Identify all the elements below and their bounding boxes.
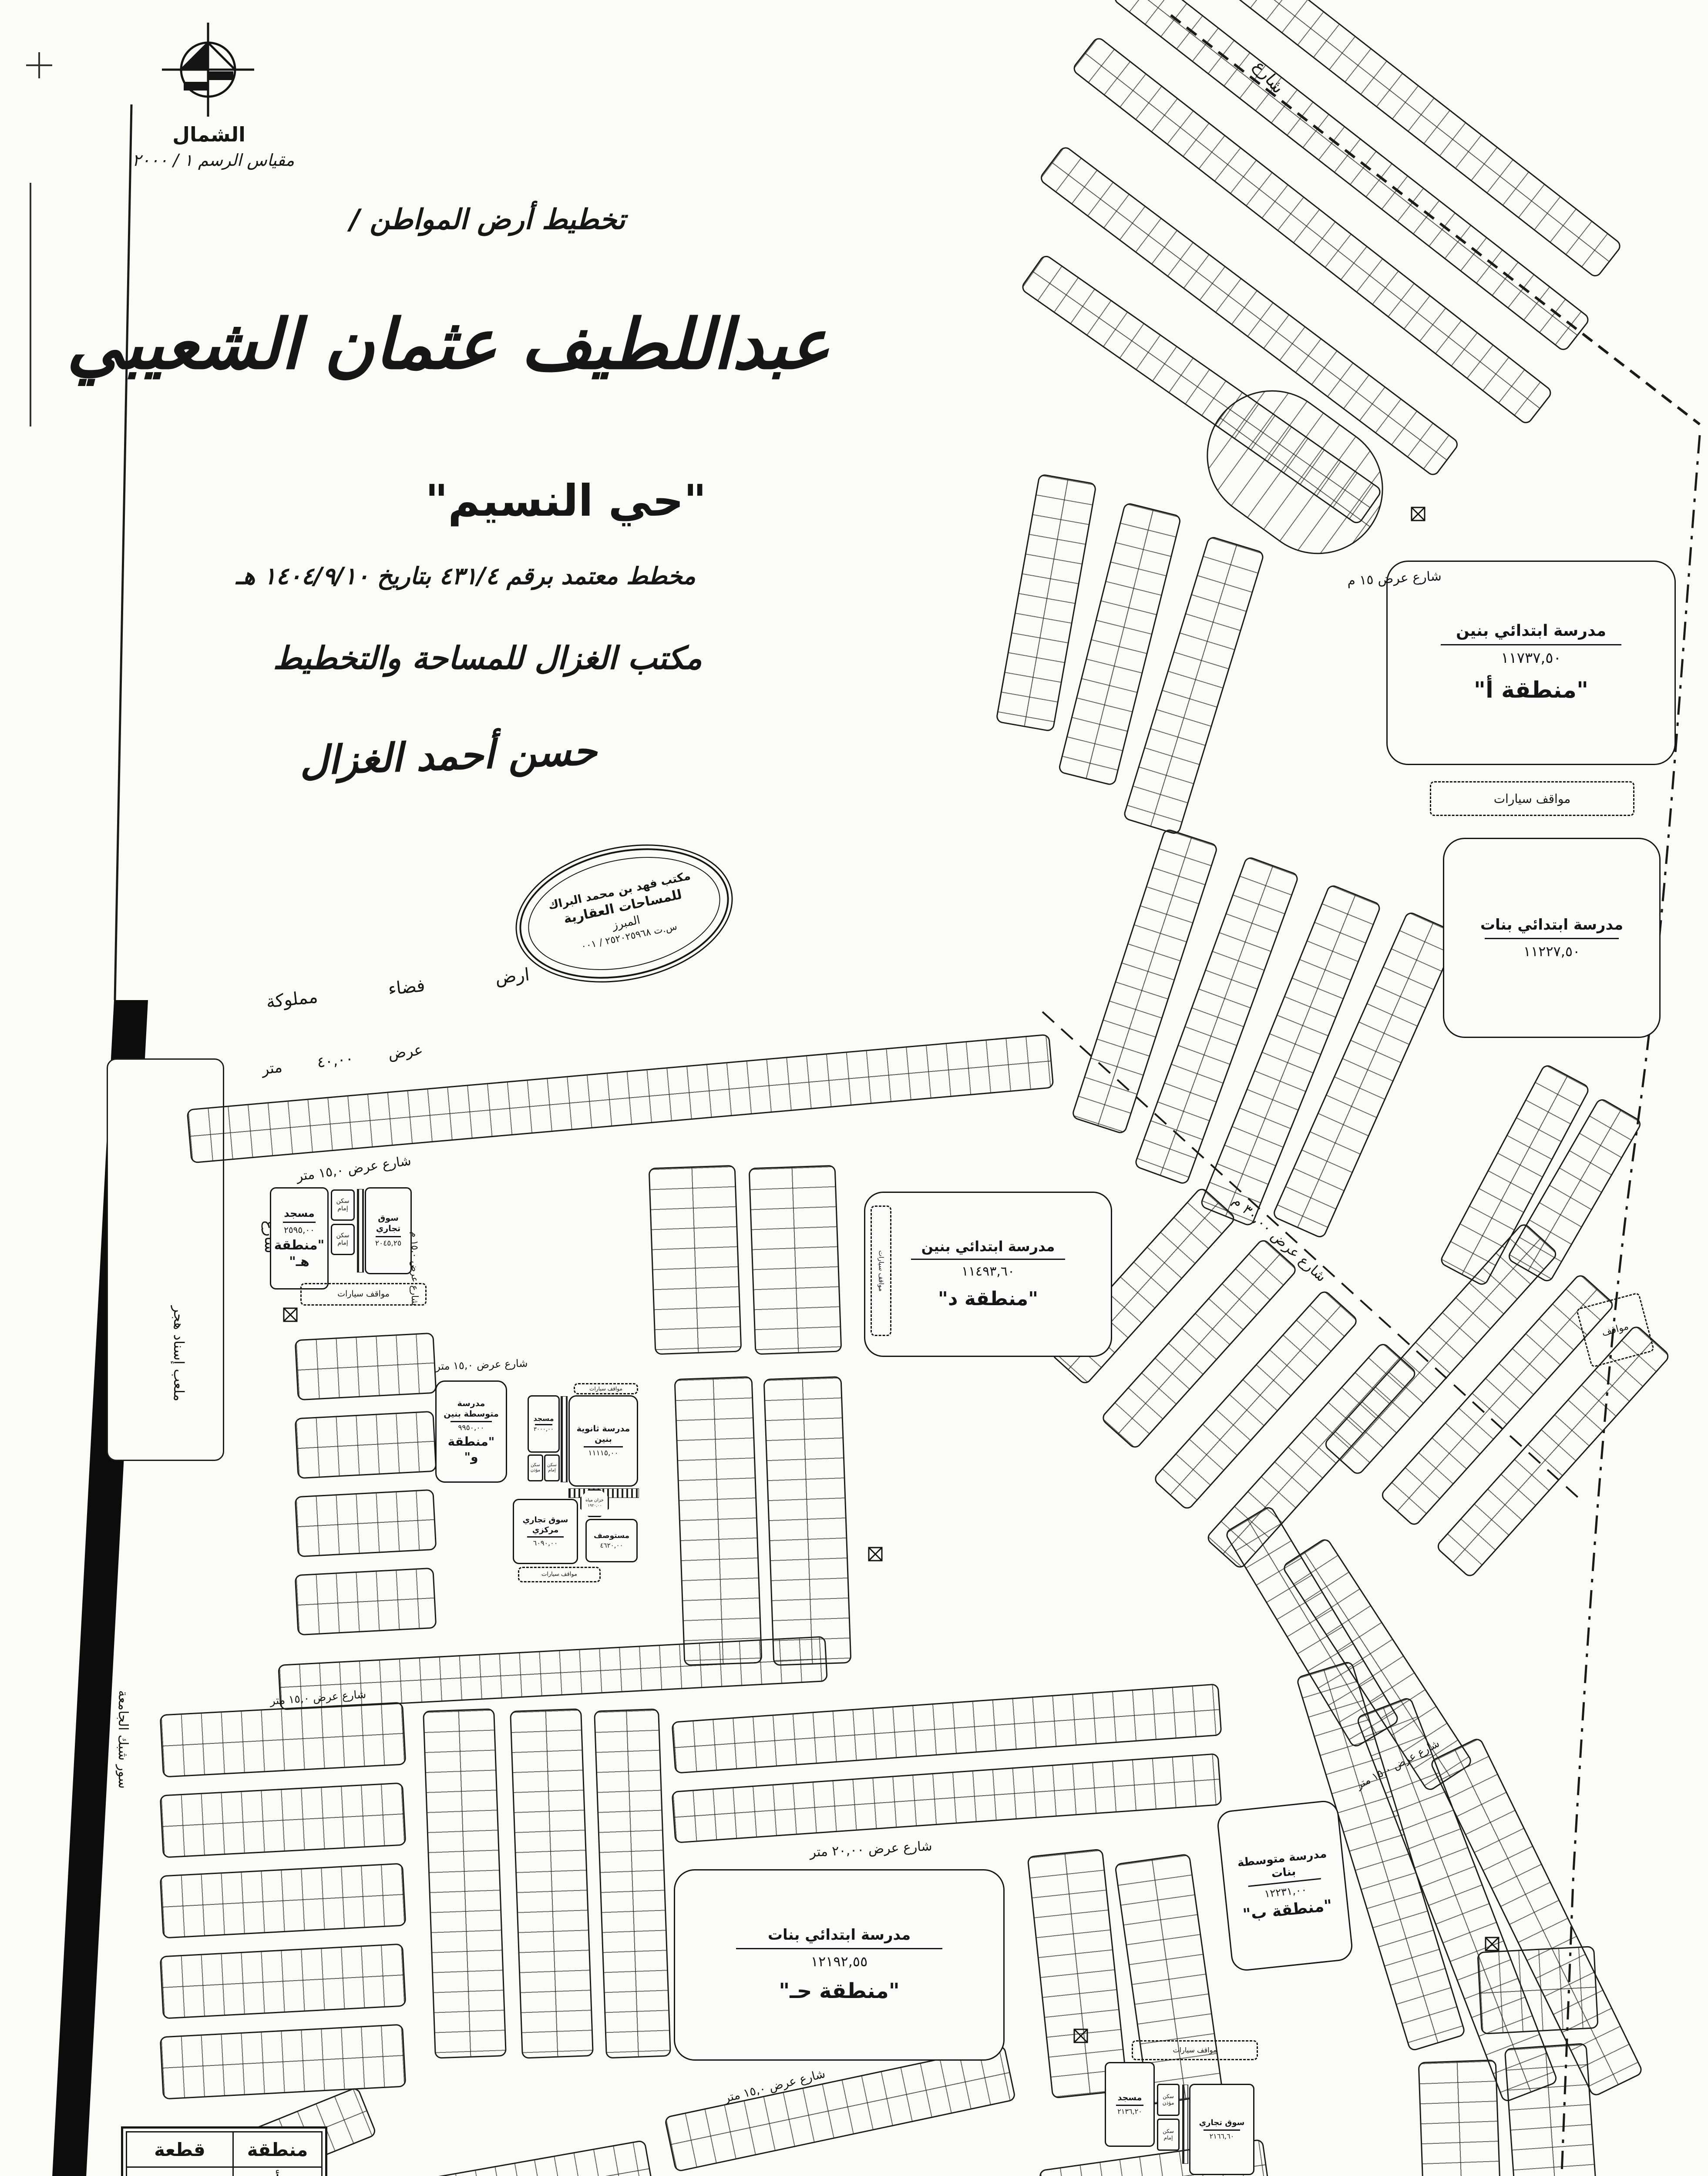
facility-name: مدرسة متوسطة بنين [439, 1399, 503, 1420]
parcel-block [295, 1489, 437, 1558]
school-zone-d: مدرسة ابتدائي بنين ١١٤٩٣,٦٠ "منطقة د" [864, 1192, 1112, 1357]
facility-name: سكن إمام [333, 1232, 353, 1247]
divider [527, 1536, 564, 1538]
market-south: سوق تجاري ٢١٦٦,٦٠ [1189, 2084, 1254, 2175]
school-zone-b: مدرسة متوسطة بنات ١٢٢٣١,٠٠ "منطقة ب" [1216, 1799, 1354, 1972]
muezzin-house-w: سكن مؤذن [528, 1454, 543, 1481]
school-zone-a: مدرسة ابتدائي بنين ١١٧٣٧,٥٠ "منطقة أ" [1386, 561, 1676, 765]
facility-name: مدرسة ابتدائي بنين [1456, 621, 1606, 641]
parking-zone-w-north: مواقف سيارات [574, 1383, 638, 1394]
facility-area: ٤٦٢٠,٠٠ [600, 1541, 623, 1550]
facility-area: ١١٤٩٣,٦٠ [962, 1263, 1015, 1280]
parcel-block [295, 1333, 437, 1401]
facility-area: ١١٧٣٧,٥٠ [1501, 649, 1561, 668]
facility-area: ٢٥٩٥,٠٠ [284, 1225, 315, 1236]
facility-name: سوق تجاري [1199, 2118, 1245, 2128]
facility-name: مدرسة متوسطة بنات [1224, 1846, 1341, 1886]
parcel-block [1418, 2059, 1506, 2176]
divider [283, 1222, 316, 1223]
scale-label: مقياس الرسم ١ / ٢٠٠٠ [118, 151, 309, 170]
facility-name: مسجد [284, 1207, 314, 1220]
facility-name: سوق تجاري مركزي [517, 1515, 574, 1535]
parcel-block [749, 1165, 842, 1355]
imam-house-h2: سكن إمام [331, 1224, 355, 1255]
facility-name: سكن إمام [1159, 2128, 1178, 2141]
facility-name: مستوصف [594, 1531, 629, 1541]
facility-name: مواقف سيارات [1173, 2046, 1217, 2055]
facility-name: مسجد [534, 1414, 554, 1423]
facility-area: ١٢١٩٢,٥٥ [811, 1953, 867, 1970]
zone-label-d: "منطقة د" [938, 1287, 1038, 1311]
zones-parcels-table: منطقة قطعة أ ٤١٥ ب ٢٢٤ حـ ٢٢٢ د ١٤٣ هـ ١… [121, 2126, 327, 2176]
facility-name: سكن مؤذن [529, 1463, 541, 1474]
facility-area: ٢١٣٦,٢٠ [1117, 2107, 1142, 2116]
parking-south: مواقف سيارات [1132, 2040, 1258, 2060]
facility-area: ١٩٢٠,٠٠ [588, 1504, 602, 1508]
facility-name: سكن إمام [546, 1463, 558, 1474]
zone-label-h: "منطقة هـ" [274, 1237, 325, 1270]
hatched-strip [1182, 2085, 1188, 2164]
facility-area: ١٢٢٣١,٠٠ [1264, 1883, 1307, 1901]
clinic-zone-w: مستوصف ٤٦٢٠,٠٠ [585, 1519, 638, 1562]
facility-name: مدرسة ابتدائي بنين [921, 1238, 1055, 1255]
central-market-zone-w: سوق تجاري مركزي ٦٠٩٠,٠٠ [513, 1499, 578, 1564]
parcel-block [160, 1863, 407, 1938]
north-label: الشمال [165, 123, 252, 146]
facility-area: ٢٠٤٥,٢٥ [375, 1239, 401, 1248]
hatched-strip [357, 1189, 364, 1273]
divider [535, 1424, 553, 1425]
zone-label-b: "منطقة ب" [1242, 1896, 1333, 1924]
facility-area: ١١٢٢٧,٥٠ [1523, 943, 1580, 960]
parcel-block [423, 1708, 507, 2058]
parcel-block [160, 1702, 407, 1777]
divider [1116, 2105, 1143, 2106]
header-zone: منطقة [233, 2132, 322, 2167]
facility-name: مسجد [1118, 2093, 1142, 2103]
district-name: "حي النسيم" [387, 475, 744, 526]
facility-area: ١١١١٥,٠٠ [588, 1449, 618, 1458]
parking-zone-a: مواقف سيارات [1430, 781, 1634, 816]
parcel-block [649, 1165, 742, 1355]
parking-zone-h: مواقف سيارات [300, 1283, 427, 1306]
owner-name: عبداللطيف عثمان الشعيبي [48, 305, 849, 385]
mosque-south: مسجد ٢١٣٦,٢٠ [1105, 2062, 1155, 2147]
parcel-block [160, 2024, 407, 2099]
divider [736, 1948, 943, 1949]
parking-zone-w-south: مواقف سيارات [518, 1567, 601, 1582]
facility-name: سكن إمام [333, 1198, 353, 1213]
parcel-block [763, 1376, 852, 1666]
mosque-zone-h: مسجد ٢٥٩٥,٠٠ "منطقة هـ" [270, 1187, 329, 1289]
facility-name: مواقف سيارات [589, 1386, 622, 1392]
approval-line: مخطط معتمد برقم ٤٣١/٤ بتاريخ ١٤٠٤/٩/١٠ ه… [178, 562, 753, 590]
hatched-strip [561, 1396, 568, 1482]
table-row: أ ٤١٥ [127, 2167, 322, 2176]
plan-sheet: الشمال مقياس الرسم ١ / ٢٠٠٠ تخطيط أرض ال… [0, 0, 1708, 2176]
facility-name: مواقف سيارات [1494, 791, 1571, 806]
facility-area: ٢١٦٦,٦٠ [1210, 2132, 1234, 2141]
zone-label-j: "منطقة حـ" [779, 1978, 899, 2004]
office-name: مكتب الغزال للمساحة والتخطيط [222, 640, 753, 676]
stadium-label: ملعب إسناد هجر [171, 1114, 187, 1401]
street-label: شارع عرض ١٥,٠ م [410, 1175, 420, 1306]
parcel-block [160, 1943, 407, 2019]
facility-name: سوق تجاري [369, 1213, 408, 1234]
facility-name: مواقف [1600, 1321, 1630, 1340]
facility-name: مدرسة ابتدائي بنات [768, 1926, 911, 1944]
muezzin-house-south: سكن مؤذن [1157, 2084, 1180, 2116]
facility-area: ٣٠٠٠,٠٠ [534, 1426, 554, 1433]
header-count: قطعة [127, 2132, 233, 2167]
facility-area: ٩٩٥٠,٠٠ [458, 1424, 484, 1433]
facility-name: مواقف سيارات [541, 1571, 577, 1578]
facility-name: مدرسة ثانوية بنين [572, 1424, 634, 1445]
mosque-zone-w: مسجد ٣٠٠٠,٠٠ [528, 1395, 560, 1453]
divider [911, 1259, 1065, 1260]
parking-zone-d: مواقف سيارات [871, 1206, 891, 1336]
secondary-school-zone-w: مدرسة ثانوية بنين ١١١١٥,٠٠ [568, 1395, 638, 1487]
market-zone-h: سوق تجاري ٢٠٤٥,٢٥ [365, 1187, 412, 1274]
parcel-block [295, 1568, 437, 1636]
table-header-row: منطقة قطعة [127, 2132, 322, 2167]
imam-house-w: سكن إمام [544, 1454, 560, 1481]
divider [584, 1446, 623, 1447]
university-fence-label-west: سور شبك الجامعة [115, 1536, 131, 1789]
parcel-block [160, 1782, 407, 1858]
imam-house-south: سكن إمام [1157, 2119, 1180, 2151]
divider [376, 1236, 401, 1237]
facility-name: مواقف سيارات [337, 1289, 390, 1300]
north-symbol [162, 23, 254, 117]
school-zone-w: مدرسة متوسطة بنين ٩٩٥٠,٠٠ "منطقة و" [435, 1380, 507, 1483]
girls-school-northeast: مدرسة ابتدائي بنات ١١٢٢٧,٥٠ [1443, 838, 1661, 1038]
zone-cell: أ [233, 2167, 322, 2176]
water-tank-zone-w: خزان مياه ١٩٢٠,٠٠ [580, 1489, 609, 1517]
facility-area: ٦٠٩٠,٠٠ [533, 1539, 558, 1548]
imam-house-h1: سكن إمام [331, 1189, 355, 1221]
parcel-block [674, 1376, 763, 1666]
facility-name: مدرسة ابتدائي بنات [1480, 916, 1623, 934]
facility-name: سكن مؤذن [1159, 2093, 1178, 2106]
school-zone-j: مدرسة ابتدائي بنات ١٢١٩٢,٥٥ "منطقة حـ" [674, 1869, 1005, 2061]
count-cell: ٤١٥ [127, 2167, 233, 2176]
divider [1485, 938, 1619, 939]
parcel-block [594, 1709, 671, 2059]
zone-label-w: "منطقة و" [439, 1434, 503, 1464]
divider [1204, 2129, 1240, 2131]
facility-name: خزان مياه [585, 1498, 604, 1504]
zone-label-a: "منطقة أ" [1474, 676, 1588, 705]
facility-name: مواقف سيارات [877, 1250, 885, 1292]
parcel-block [510, 1708, 594, 2058]
divider [451, 1421, 491, 1422]
plan-title: تخطيط أرض المواطن / [279, 204, 696, 236]
divider [1441, 644, 1621, 645]
parcel-block [295, 1411, 437, 1479]
